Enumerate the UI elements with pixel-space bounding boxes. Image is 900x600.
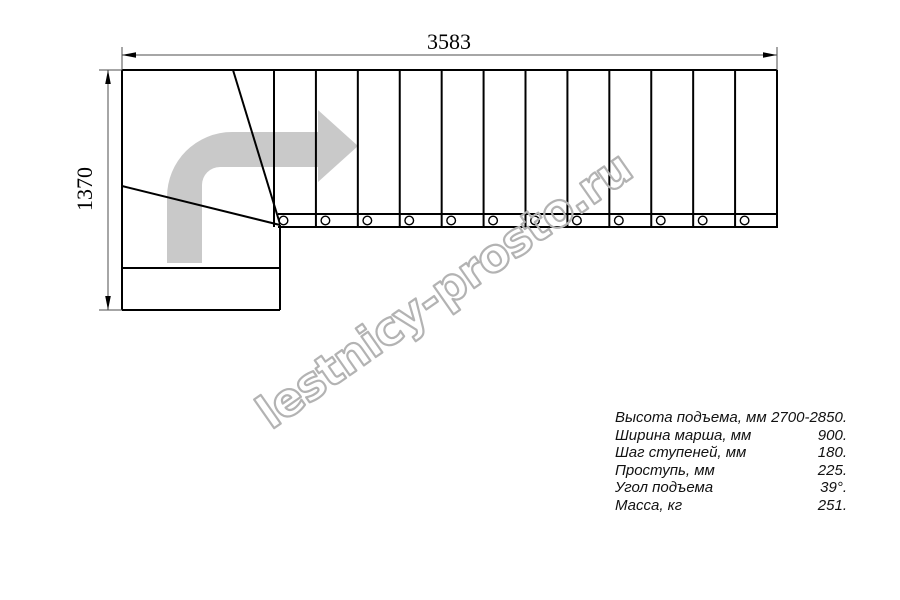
spec-label: Масса, кг [615,497,682,515]
baluster-circle [321,216,330,225]
spec-row-height: Высота подъема, мм 2700-2850. [615,409,847,427]
baluster-circle [447,216,456,225]
spec-value: 251. [818,497,847,515]
spec-row-flight-width: Ширина марша, мм 900. [615,427,847,445]
travel-direction-arrow [167,110,358,263]
dimension-arrowhead [763,52,777,58]
baluster-circle [615,216,624,225]
spec-value: 225. [818,462,847,480]
dimension-arrowhead [122,52,136,58]
travel-arrow-shape [167,110,358,263]
spec-row-mass: Масса, кг 251. [615,497,847,515]
watermark-text: lestnicy-prosto.ru [246,140,641,439]
specs-table: Высота подъема, мм 2700-2850. Ширина мар… [615,409,847,514]
spec-label: Угол подъема [615,479,713,497]
spec-label: Шаг ступеней, мм [615,444,746,462]
baluster-circle [279,216,288,225]
baluster-circle [740,216,749,225]
dimension-width-label: 3583 [427,29,471,54]
dimension-width: 3583 [122,29,777,70]
baluster-circle [698,216,707,225]
baluster-circle [363,216,372,225]
spec-row-step-rise: Шаг ступеней, мм 180. [615,444,847,462]
spec-value: 900. [818,427,847,445]
spec-label: Высота подъема, мм [615,409,767,427]
stair-plan-drawing: 3583 1370 lestnicy-prosto.ru Высота подъ… [0,0,900,600]
spec-value: 180. [818,444,847,462]
baluster-circle [656,216,665,225]
spec-value: 39°. [820,479,847,497]
baluster-circle [405,216,414,225]
spec-row-angle: Угол подъема 39°. [615,479,847,497]
spec-value: 2700-2850. [771,409,847,427]
spec-label: Проступь, мм [615,462,715,480]
dimension-height: 1370 [72,70,122,310]
spec-row-tread-depth: Проступь, мм 225. [615,462,847,480]
spec-label: Ширина марша, мм [615,427,751,445]
dimension-arrowhead [105,70,111,84]
dimension-height-label: 1370 [72,167,97,211]
dimension-arrowhead [105,296,111,310]
